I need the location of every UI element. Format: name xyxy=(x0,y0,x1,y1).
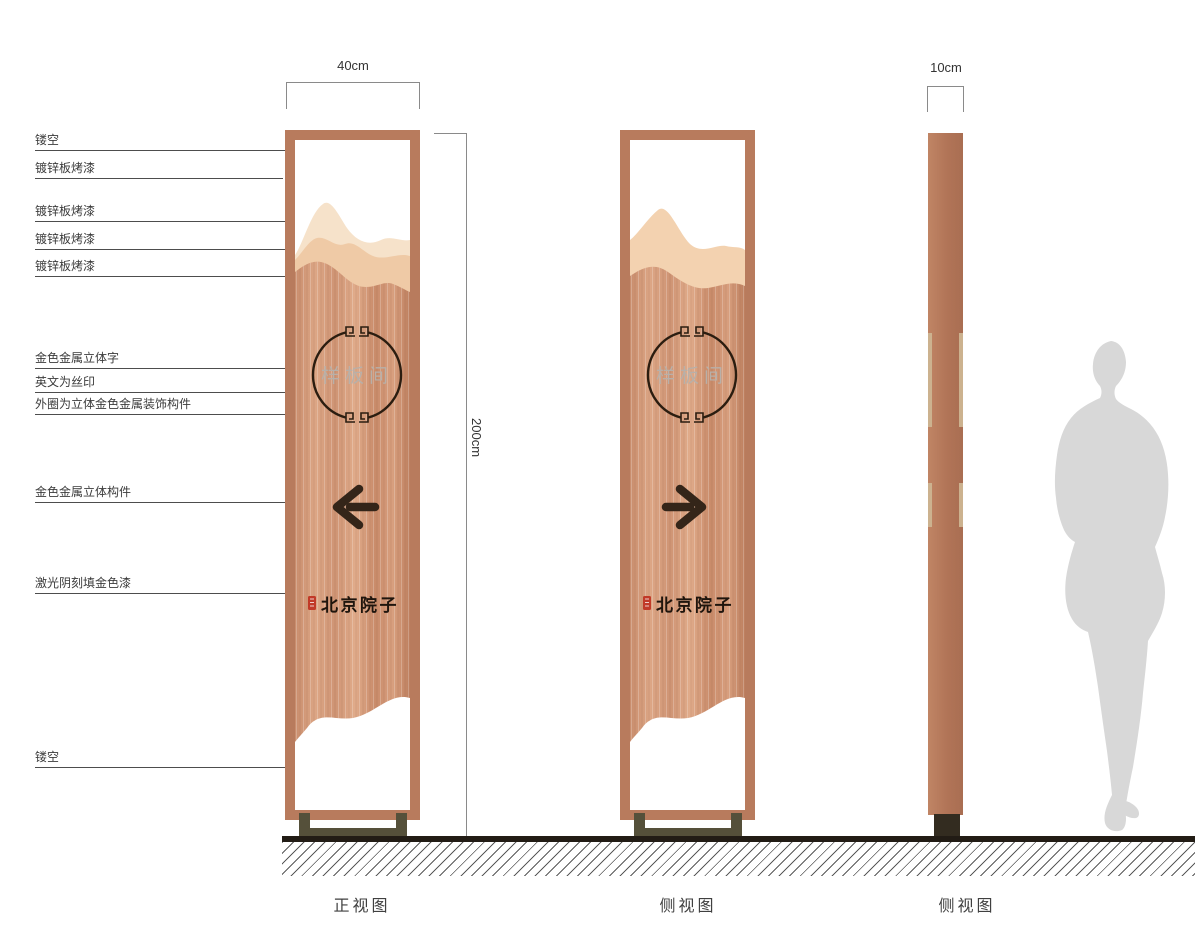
brand-calligraphy: 北京院子 xyxy=(321,595,399,615)
plate-text: 样板间 xyxy=(321,365,393,387)
side-profile-column xyxy=(928,133,963,815)
brand-calligraphy: 北京院子 xyxy=(656,595,734,615)
view-label-side-1: 侧视图 xyxy=(659,892,716,916)
callout-label: 镂空 xyxy=(35,133,59,147)
protruding-element-edge xyxy=(959,333,963,427)
front-view-artwork: 样板间 北京院子 xyxy=(295,140,410,810)
callout-galvanized-2: 镀锌板烤漆 xyxy=(35,203,323,222)
callout-label: 金色金属立体构件 xyxy=(35,485,131,499)
side-view-sign: 样板间 北京院子 xyxy=(620,130,755,820)
profile-base xyxy=(934,814,960,837)
seal-icon xyxy=(308,596,316,610)
dimension-side-depth: 10cm xyxy=(925,60,967,75)
callout-hollow-bottom: 镂空 xyxy=(35,749,302,768)
dimension-bracket-10cm xyxy=(927,86,964,112)
callout-label: 激光阴刻填金色漆 xyxy=(35,576,131,590)
protruding-element-edge xyxy=(959,483,963,527)
dimension-height: 200cm xyxy=(469,418,484,457)
front-sign-base xyxy=(299,813,407,837)
callout-label: 镂空 xyxy=(35,750,59,764)
callout-galvanized-1: 镀锌板烤漆 xyxy=(35,160,283,179)
callout-outer-ring: 外圈为立体金色金属装饰构件 xyxy=(35,396,313,415)
protruding-element-edge xyxy=(928,333,932,427)
signage-design-sheet: 镂空 镀锌板烤漆 镀锌板烤漆 镀锌板烤漆 镀锌板烤漆 金色金属立体字 英文为丝印… xyxy=(0,0,1195,927)
callout-label: 金色金属立体字 xyxy=(35,351,119,365)
dimension-tick-200cm xyxy=(434,133,466,134)
person-silhouette xyxy=(1045,337,1185,837)
front-view-sign: 样板间 北京院子 xyxy=(285,130,420,820)
dimension-bracket-40cm xyxy=(286,82,420,109)
view-label-front: 正视图 xyxy=(333,892,390,916)
side-view-artwork: 样板间 北京院子 xyxy=(630,140,745,810)
callout-label: 镀锌板烤漆 xyxy=(35,232,95,246)
callout-label: 镀锌板烤漆 xyxy=(35,204,95,218)
dimension-line-200cm xyxy=(466,133,467,836)
callout-hollow-top: 镂空 xyxy=(35,132,307,151)
view-label-side-2: 侧视图 xyxy=(938,892,995,916)
callout-label: 英文为丝印 xyxy=(35,375,95,389)
callout-label: 外圈为立体金色金属装饰构件 xyxy=(35,397,191,411)
plate-text: 样板间 xyxy=(656,365,728,387)
callout-gold-3d-text: 金色金属立体字 xyxy=(35,350,323,369)
seal-icon xyxy=(643,596,651,610)
callout-english-silkscreen: 英文为丝印 xyxy=(35,374,320,393)
protruding-element-edge xyxy=(928,483,932,527)
dimension-front-width: 40cm xyxy=(286,58,420,73)
callout-label: 镀锌板烤漆 xyxy=(35,161,95,175)
side-sign-base xyxy=(634,813,742,837)
callout-galvanized-3: 镀锌板烤漆 xyxy=(35,231,293,250)
callout-galvanized-4: 镀锌板烤漆 xyxy=(35,258,293,277)
callout-label: 镀锌板烤漆 xyxy=(35,259,95,273)
ground-hatching xyxy=(282,842,1195,876)
